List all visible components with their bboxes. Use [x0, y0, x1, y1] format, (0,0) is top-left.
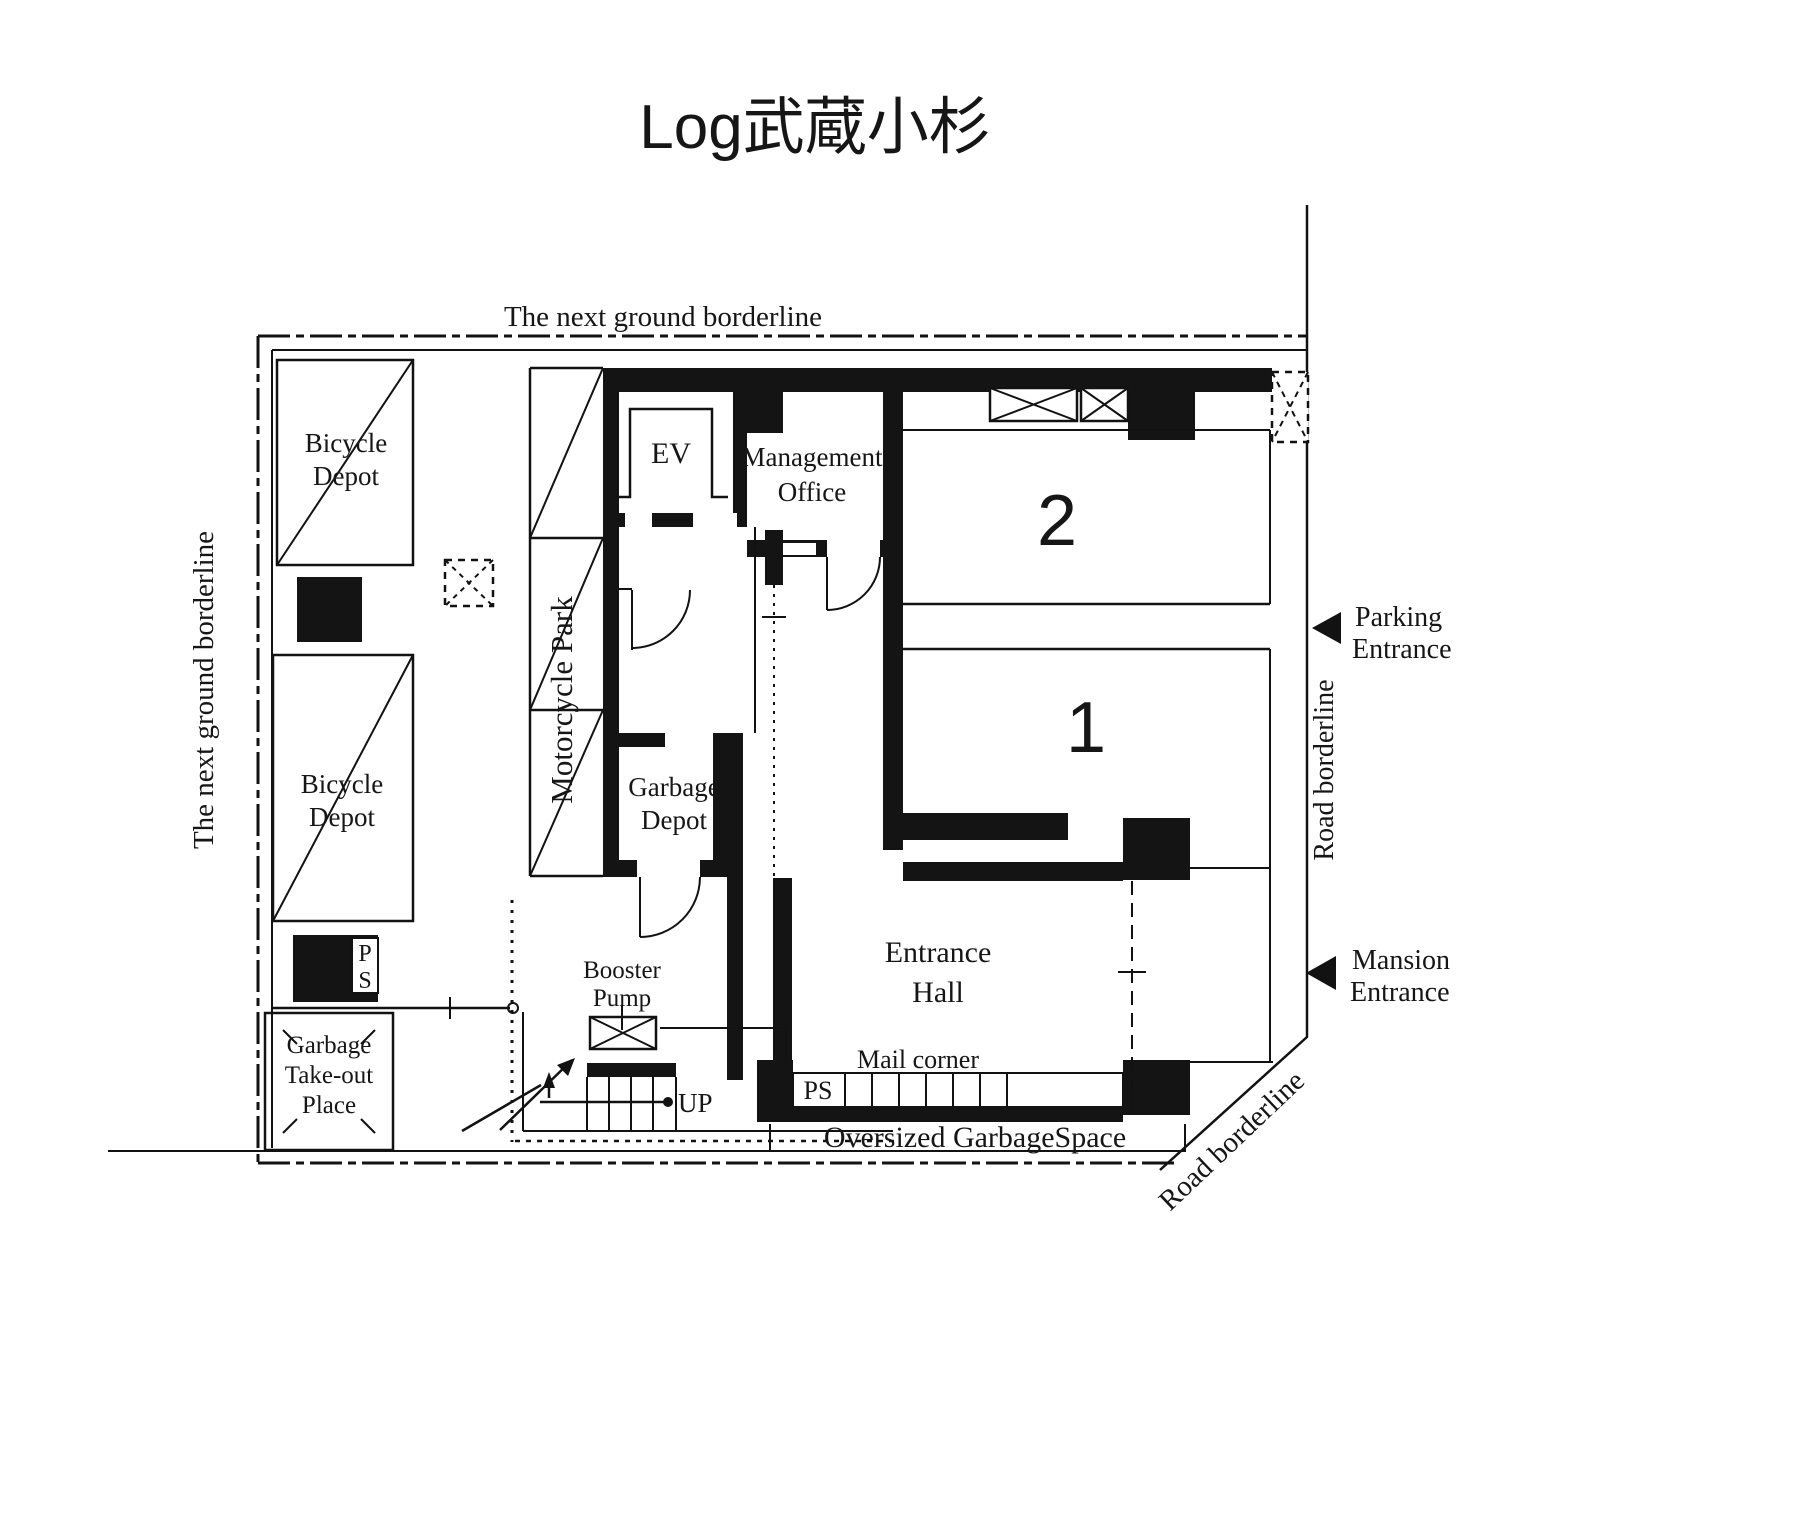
garbage-takeout-label-3: Place: [302, 1092, 356, 1119]
ev-south-opening-1: [625, 513, 652, 527]
floorplan-page: { "title": "Log武蔵小杉", "colors": { "ink":…: [0, 0, 1794, 1524]
stair-rail-dot: [663, 1097, 673, 1107]
garbage-takeout-label-1: Garbage: [287, 1032, 372, 1059]
management-office-label-1: Management: [742, 442, 883, 472]
bicycle-depot-1-label-1: Bicycle: [305, 428, 387, 458]
dashed-x-square: [445, 560, 493, 606]
motorcycle-park-label: Motorcycle Park: [544, 596, 579, 804]
mid-pillar-block: [1123, 818, 1190, 880]
garbage-depot-door: [640, 877, 700, 937]
ps-shaft-label-p: P: [358, 941, 371, 967]
mailbox-outline: [793, 1073, 1123, 1106]
east-court-lines: [1190, 868, 1273, 1062]
ev-office-pillar: [737, 382, 783, 433]
west-wall: [603, 368, 619, 877]
office-door-opening: [827, 540, 880, 557]
bicycle-depot-2-label-2: Depot: [309, 802, 375, 832]
garbage-depot-label-1: Garbage: [628, 772, 719, 802]
southeast-pillar-block: [1123, 1060, 1190, 1115]
north-xbox-wide: [990, 388, 1077, 421]
corridor-west-wall: [727, 817, 743, 1080]
mail-left-block: [757, 1060, 793, 1122]
site-plan-drawing: Log武蔵小杉 The next ground borderline The n…: [0, 0, 1794, 1524]
parking-space-1-label: 1: [1066, 688, 1106, 768]
management-office-label-2: Office: [778, 477, 846, 507]
site-boundary: [108, 205, 1307, 1170]
up-label: UP: [678, 1088, 713, 1118]
ps-mail-label: PS: [804, 1076, 833, 1105]
mailbox-dividers: [845, 1073, 1007, 1106]
mansion-entrance-label-1: Mansion: [1352, 945, 1450, 976]
mail-corner-label: Mail corner: [857, 1045, 979, 1074]
pump-area-line: [660, 1028, 786, 1060]
left-borderline-label: The next ground borderline: [188, 531, 220, 849]
space-divider-lines: [903, 604, 1270, 649]
midroom-east-line: [619, 527, 755, 733]
ev-label: EV: [651, 437, 691, 470]
mansion-entrance-arrow-icon: [1306, 956, 1336, 990]
shaft-block: [297, 577, 362, 642]
parking-entrance-arrow-icon: [1312, 612, 1341, 644]
north-xbox-narrow: [1081, 388, 1128, 421]
entrance-hall-label-2: Hall: [912, 976, 964, 1009]
corridor-east-wall: [773, 878, 792, 1080]
corner-dashed-xbox: [1272, 372, 1308, 442]
right-borderline-label: Road borderline: [1309, 679, 1340, 860]
office-door: [827, 557, 880, 610]
bicycle-depot-1-label-2: Depot: [313, 461, 379, 491]
parking-entrance-label-1: Parking: [1355, 602, 1442, 633]
booster-pump-label-1: Booster: [583, 957, 661, 984]
top-borderline-label: The next ground borderline: [504, 301, 822, 333]
office-window-slot: [782, 543, 816, 555]
mansion-entrance-label-2: Entrance: [1350, 977, 1450, 1008]
gate-slash: [462, 1085, 541, 1131]
parking-entrance-label-2: Entrance: [1352, 634, 1452, 665]
entrance-hall-label-1: Entrance: [885, 936, 992, 969]
garbage-depot-door-opening: [637, 860, 700, 877]
ps-shaft-label-s: S: [358, 968, 371, 994]
midroom-door: [632, 590, 690, 650]
hall-north-band: [903, 862, 1123, 881]
garbage-depot-north-opening: [665, 733, 715, 747]
north-wall: [603, 368, 1272, 392]
stair-treads: [587, 1077, 676, 1130]
office-east-wall: [883, 368, 903, 850]
ev-south-opening-2: [693, 513, 737, 527]
parking-space-2-label: 2: [1037, 481, 1077, 561]
stairs-top-band: [587, 1063, 676, 1077]
booster-pump-label-2: Pump: [593, 985, 651, 1012]
oversized-garbage-label: Oversized GarbageSpace: [824, 1121, 1126, 1154]
south-wall-band: [790, 1106, 1123, 1122]
garbage-depot-label-2: Depot: [641, 805, 707, 835]
space1-south-wall: [903, 813, 1068, 840]
mail-corner-row: [793, 1073, 1123, 1106]
garbage-takeout-label-2: Take-out: [285, 1062, 374, 1089]
north-wall-block: [1128, 392, 1195, 440]
hall-north-stub-wall: [765, 530, 783, 585]
bicycle-depot-2-label-1: Bicycle: [301, 769, 383, 799]
page-title: Log武蔵小杉: [639, 93, 990, 162]
